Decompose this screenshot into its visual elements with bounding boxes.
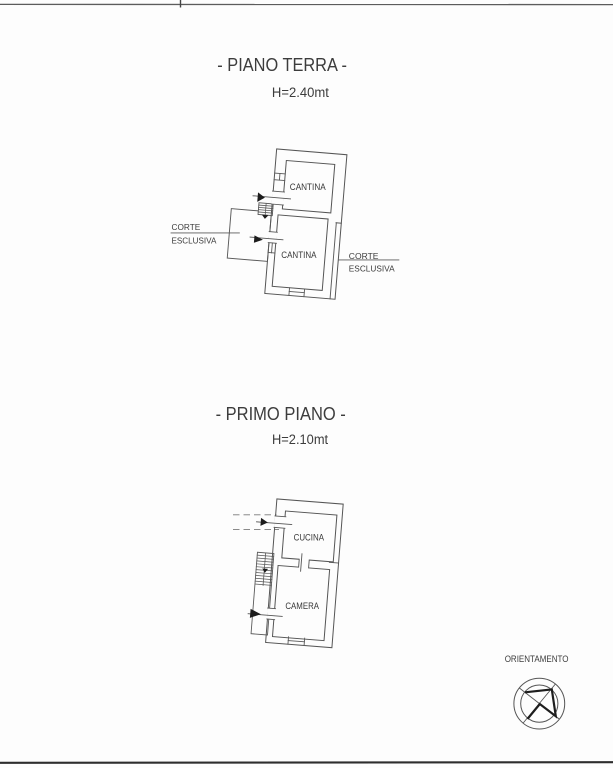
svg-text:CANTINA: CANTINA [290, 182, 326, 192]
svg-text:ORIENTAMENTO: ORIENTAMENTO [505, 654, 569, 664]
svg-text:ESCLUSIVA: ESCLUSIVA [172, 235, 217, 245]
svg-text:ESCLUSIVA: ESCLUSIVA [349, 263, 395, 273]
svg-text:H=2.40mt: H=2.40mt [272, 84, 329, 100]
svg-text:CANTINA: CANTINA [281, 250, 316, 260]
svg-text:H=2.10mt: H=2.10mt [272, 431, 328, 447]
svg-text:CORTE: CORTE [172, 222, 201, 232]
svg-text:CORTE: CORTE [349, 251, 379, 261]
svg-text:CUCINA: CUCINA [294, 532, 324, 542]
svg-text:CAMERA: CAMERA [285, 601, 319, 611]
svg-text:- PRIMO PIANO -: - PRIMO PIANO - [216, 403, 346, 424]
svg-text:- PIANO TERRA -: - PIANO TERRA - [217, 54, 347, 75]
